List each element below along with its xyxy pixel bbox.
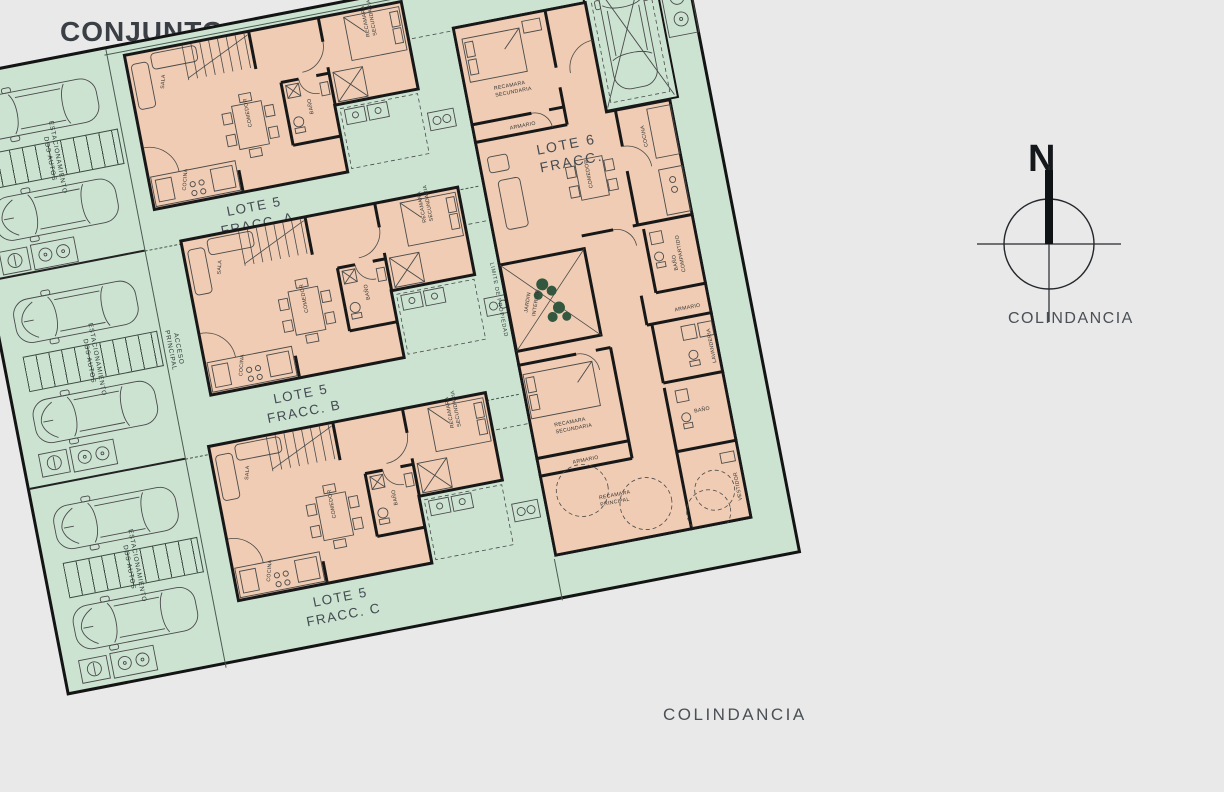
service-patio-dashed — [424, 485, 513, 560]
service-patio-dashed — [396, 279, 485, 354]
laundry-sink — [401, 292, 423, 311]
house-lote5-a: SALA COMEDOR COCINA BAÑO RECAMARA SECUND… — [123, 0, 477, 211]
site-boundary: ESTACIONAMIENTO DOS AUTOS — [0, 0, 801, 696]
parking-bay-a: ESTACIONAMIENTO DOS AUTOS — [0, 57, 145, 280]
lote6-boundary-extension — [554, 559, 563, 600]
lote5-floorplan: SALA COMEDOR COCINA BAÑO RECAMARA SECUND… — [123, 0, 477, 211]
house-outline — [124, 2, 431, 210]
street-label-colindancia-bottom: COLINDANCIA — [663, 705, 807, 725]
parking-bay-b: ESTACIONAMIENTO DOS AUTOS — [0, 259, 184, 482]
house-meters — [512, 499, 541, 522]
service-patio-dashed — [340, 94, 429, 169]
parking-bay-c: ESTACIONAMIENTO DOS AUTOS — [37, 466, 224, 689]
north-compass-icon — [973, 158, 1125, 330]
room-label-sala: SALA — [244, 465, 251, 480]
dimension-line — [412, 31, 450, 38]
house-meters — [427, 108, 456, 131]
room-label-sala: SALA — [216, 260, 223, 275]
laundry-sink — [428, 497, 450, 516]
site-plan-canvas: CONJUNTO CHAPULTEPEC CALLE CALLE COLINDA… — [0, 0, 1224, 792]
laundry-sink — [344, 106, 366, 125]
room-label-sala: SALA — [160, 74, 167, 89]
